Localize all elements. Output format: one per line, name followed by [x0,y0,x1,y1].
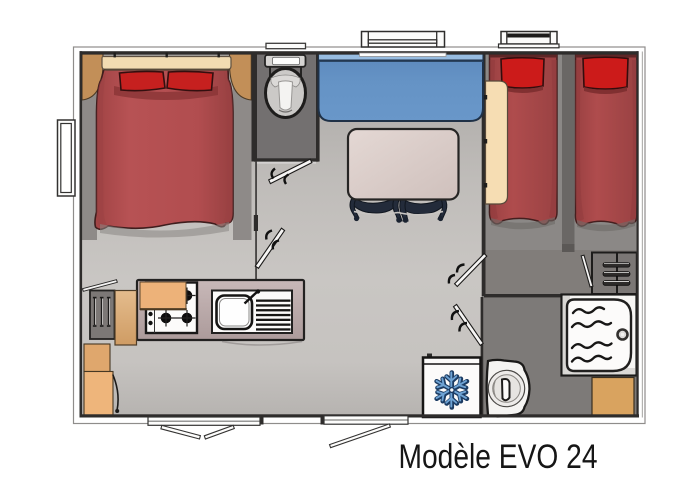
svg-text:Modèle EVO 24: Modèle EVO 24 [399,438,598,476]
